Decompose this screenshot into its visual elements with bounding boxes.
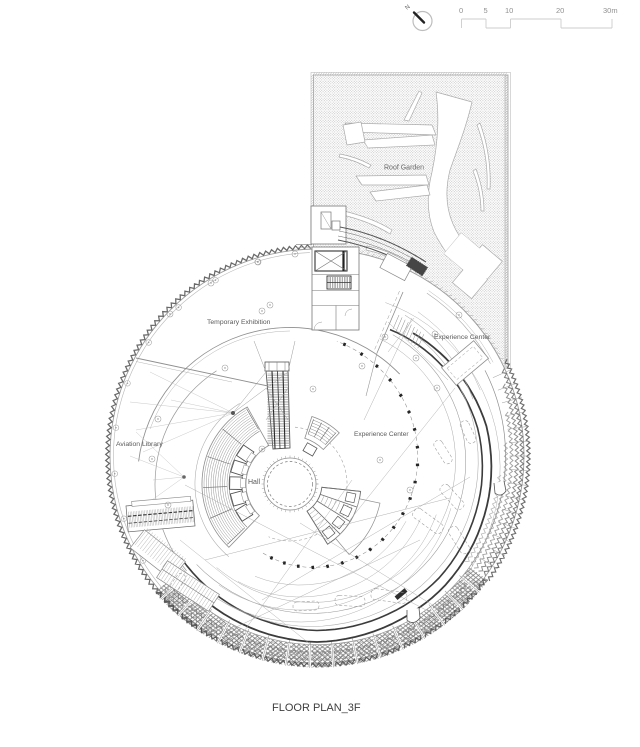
svg-text:0: 0 xyxy=(459,6,463,15)
svg-text:20: 20 xyxy=(556,6,564,15)
svg-text:Experience Center: Experience Center xyxy=(434,334,491,341)
svg-text:5: 5 xyxy=(484,6,488,15)
svg-text:Roof Garden: Roof Garden xyxy=(384,165,424,172)
svg-text:Hall: Hall xyxy=(248,479,261,486)
svg-text:30m: 30m xyxy=(603,6,618,15)
svg-text:Aviation Library: Aviation Library xyxy=(116,441,163,448)
svg-text:10: 10 xyxy=(505,6,513,15)
svg-text:Experience Center: Experience Center xyxy=(354,431,409,438)
svg-text:Temporary Exhibition: Temporary Exhibition xyxy=(207,319,271,326)
svg-text:FLOOR PLAN_3F: FLOOR PLAN_3F xyxy=(272,702,361,714)
